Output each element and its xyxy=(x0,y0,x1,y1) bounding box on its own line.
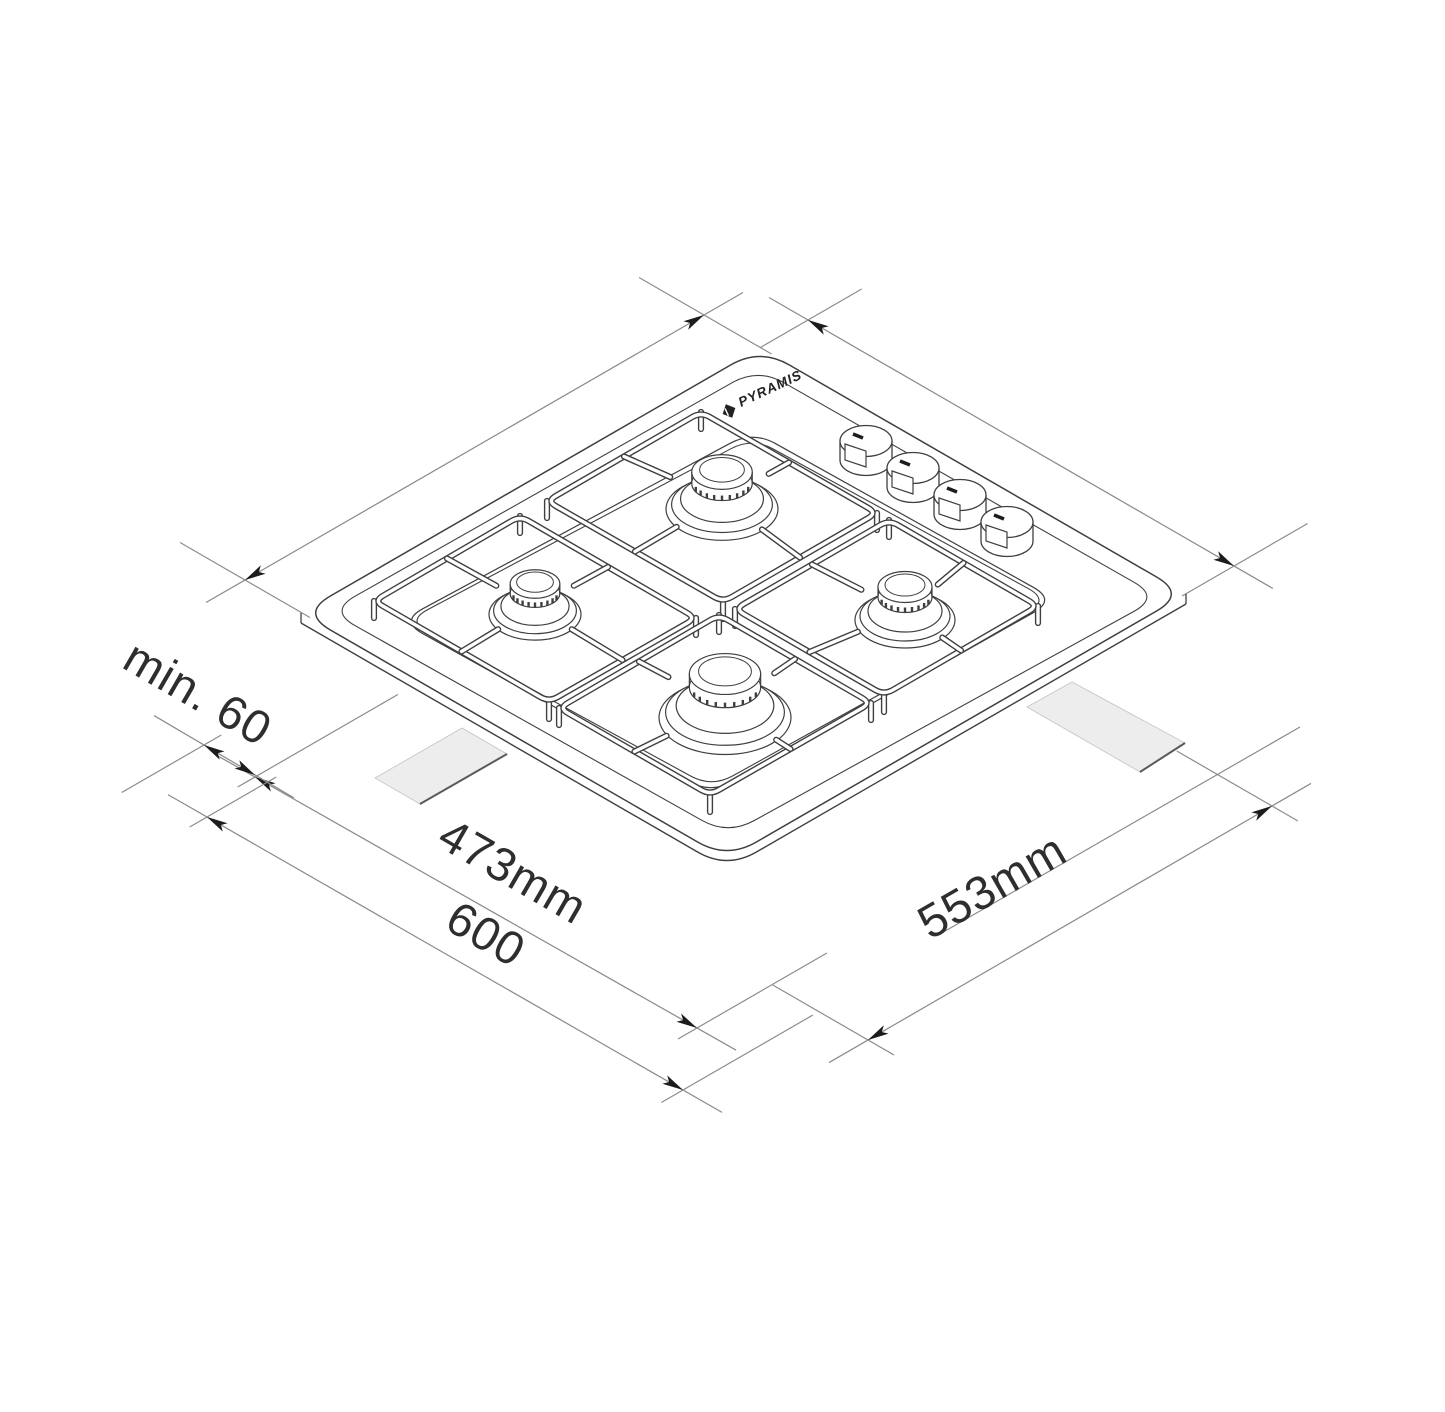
dimension-arrow xyxy=(868,1025,889,1040)
dimension-arrow xyxy=(1251,806,1272,821)
installation-diagram: min. 60 473mm 600 553mm PYRAMIS xyxy=(0,0,1445,1412)
control-knob-3 xyxy=(934,480,986,530)
control-knob-2 xyxy=(887,453,939,503)
control-knob-1 xyxy=(840,426,892,476)
dimension-arrow xyxy=(676,1014,697,1029)
dimension-arrow xyxy=(245,565,266,580)
dimension-arrow xyxy=(662,1075,683,1090)
dimension-arrow xyxy=(207,817,228,832)
cutout-mark-left xyxy=(375,728,507,804)
dimension-arrow xyxy=(1213,551,1234,566)
installation-diagram-page: min. 60 473mm 600 553mm PYRAMIS xyxy=(0,0,1445,1412)
control-knob-4 xyxy=(981,507,1033,557)
dim-label-cutout-side: 553mm xyxy=(908,822,1075,949)
cutout-mark-right xyxy=(1027,682,1185,772)
dim-label-front-clearance: min. 60 xyxy=(115,629,281,755)
dimension-cutout-side xyxy=(773,751,1311,1063)
dimension-arrow xyxy=(683,315,704,330)
dimension-arrow xyxy=(808,320,829,335)
